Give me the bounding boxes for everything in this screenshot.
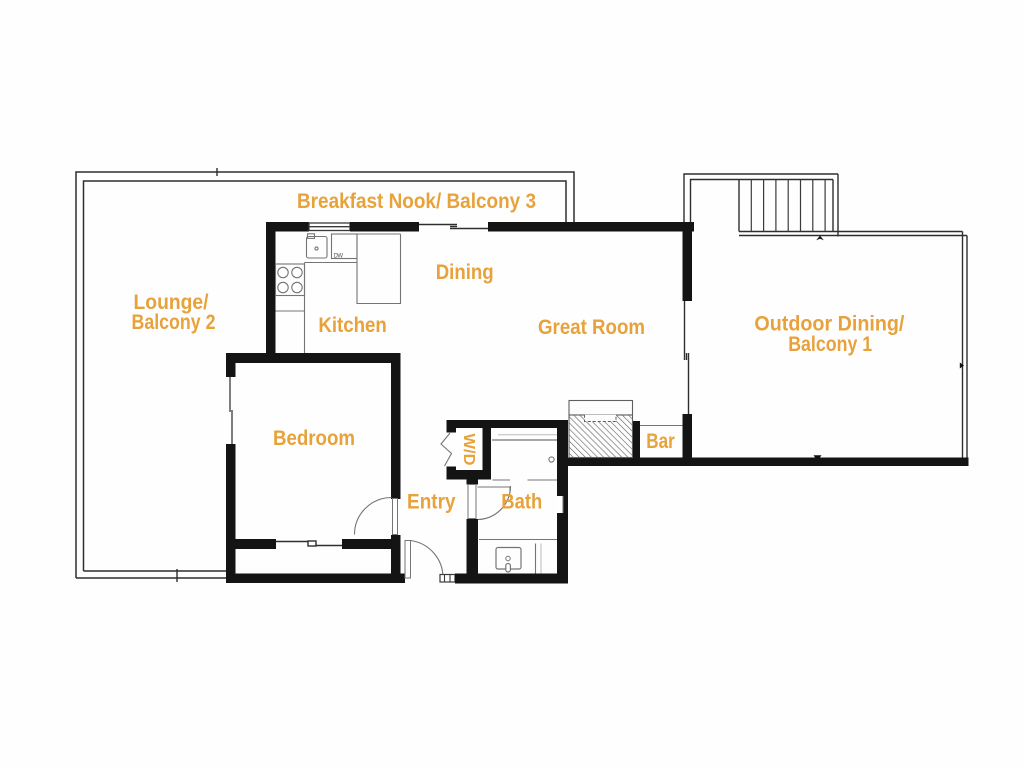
svg-text:Bath: Bath	[501, 491, 542, 514]
svg-text:Balcony 2: Balcony 2	[132, 311, 216, 334]
svg-text:Balcony 1: Balcony 1	[788, 333, 872, 356]
svg-text:Great Room: Great Room	[538, 316, 645, 339]
svg-text:Entry: Entry	[407, 491, 456, 514]
svg-text:Bedroom: Bedroom	[273, 427, 355, 450]
svg-text:Kitchen: Kitchen	[318, 314, 387, 337]
svg-text:Dining: Dining	[436, 261, 494, 284]
svg-text:DW: DW	[334, 254, 344, 260]
svg-text:Breakfast Nook/ Balcony 3: Breakfast Nook/ Balcony 3	[297, 190, 536, 213]
svg-text:W/D: W/D	[460, 434, 477, 466]
svg-text:Bar: Bar	[646, 430, 675, 453]
